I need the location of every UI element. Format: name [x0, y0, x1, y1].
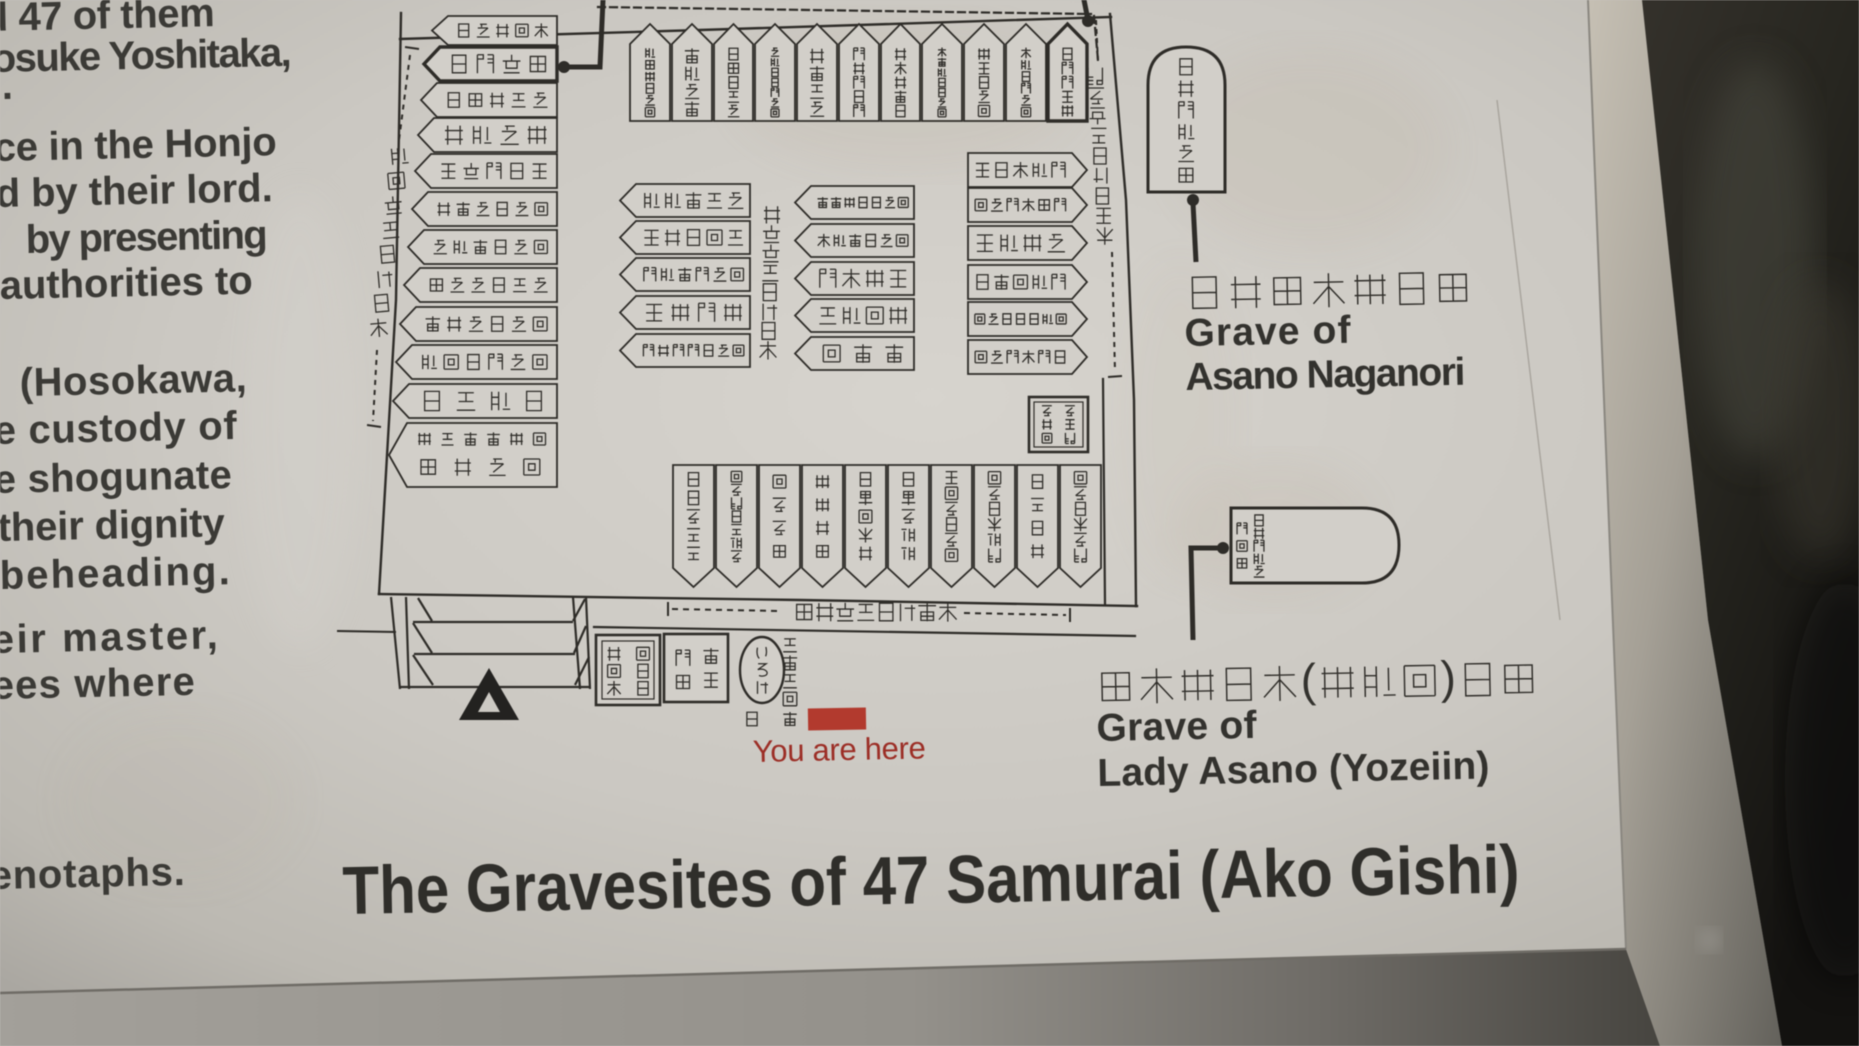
svg-text:(: ( — [1300, 654, 1317, 706]
svg-text:authorities to: authorities to — [0, 259, 253, 308]
svg-text:You are here: You are here — [752, 730, 926, 769]
svg-text:.: . — [1, 64, 13, 108]
svg-text:Asano Naganori: Asano Naganori — [1185, 351, 1466, 399]
svg-text:osuke Yoshitaka,: osuke Yoshitaka, — [0, 31, 292, 81]
svg-text:): ) — [1440, 651, 1456, 703]
svg-text:e shogunate: e shogunate — [0, 453, 232, 502]
svg-text:their dignity: their dignity — [0, 501, 226, 550]
svg-text:Grave of: Grave of — [1184, 309, 1352, 355]
svg-text:Grave of: Grave of — [1096, 704, 1258, 750]
svg-text:enotaphs.: enotaphs. — [0, 850, 185, 898]
svg-text:ce in the Honjo: ce in the Honjo — [0, 120, 277, 170]
svg-text:(Hosokawa,: (Hosokawa, — [19, 356, 247, 405]
svg-text:ees where: ees where — [0, 660, 195, 708]
svg-text:d by their lord.: d by their lord. — [0, 166, 273, 216]
svg-text:e custody of: e custody of — [0, 404, 238, 453]
svg-text:beheading.: beheading. — [0, 549, 230, 598]
svg-text:Lady Asano (Yozeiin): Lady Asano (Yozeiin) — [1097, 744, 1490, 795]
svg-text:eir master,: eir master, — [0, 613, 218, 662]
svg-text:by presenting: by presenting — [25, 213, 268, 262]
